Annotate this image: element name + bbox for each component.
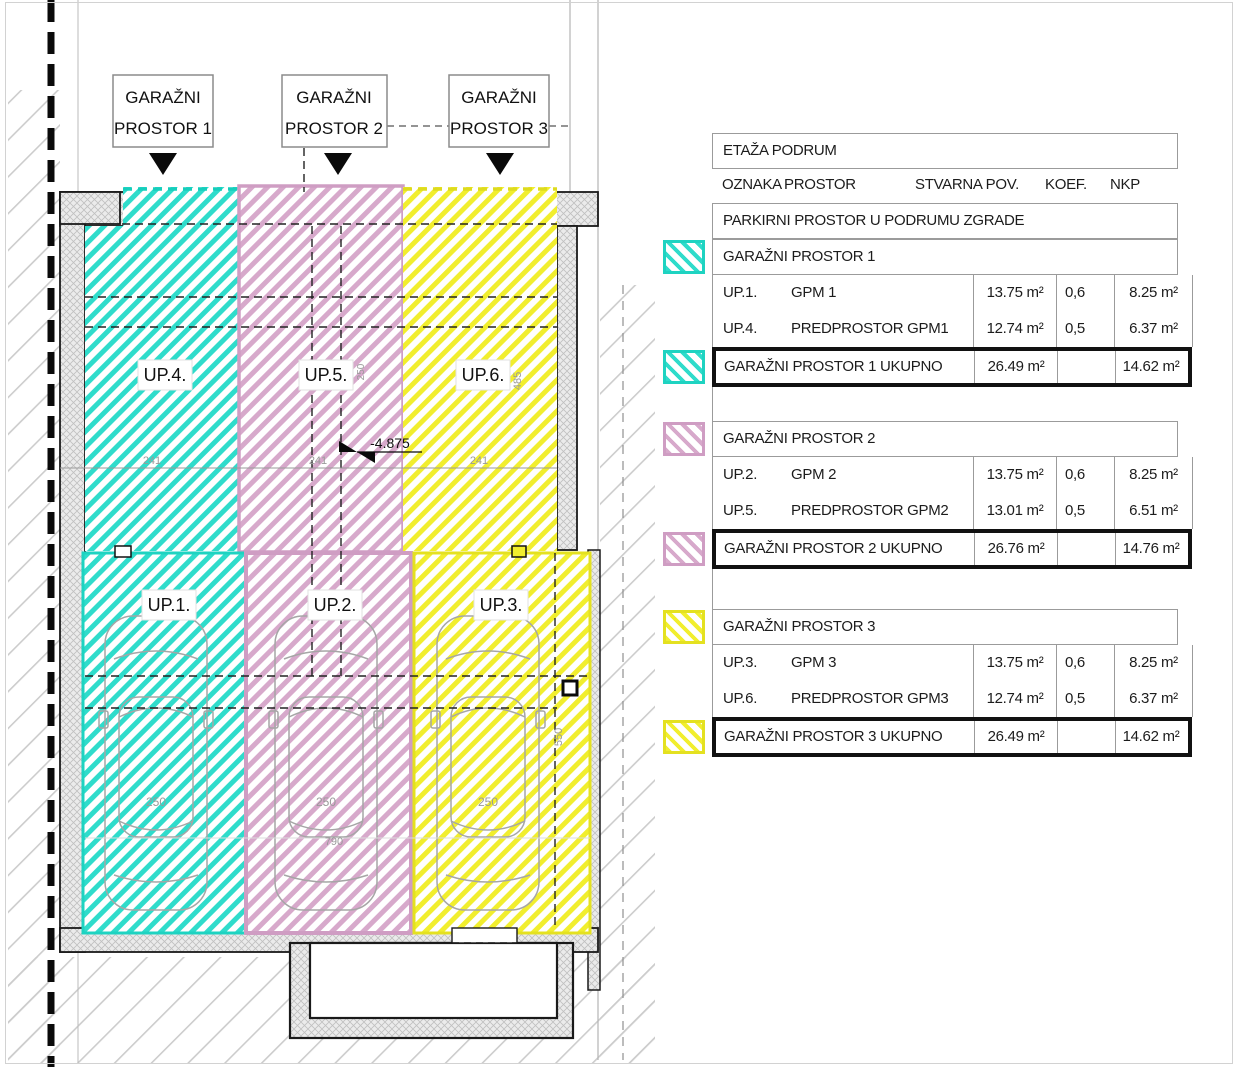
table-subtitle-row: PARKIRNI PROSTOR U PODRUMU ZGRADE bbox=[663, 203, 1203, 239]
cell-oznaka: UP.6. bbox=[713, 681, 791, 717]
garage-callout-3-line1: GARAŽNI bbox=[461, 88, 537, 107]
table-header-row: OZNAKA PROSTOR STVARNA POV. KOEF. NKP bbox=[663, 169, 1203, 203]
total-nkp: 14.76 m² bbox=[1115, 533, 1186, 565]
floor-plan: 241 241 241 485 250 550 250 250 250 790 … bbox=[0, 0, 660, 1067]
cell-nkp: 8.25 m² bbox=[1114, 275, 1193, 311]
cell-nkp: 8.25 m² bbox=[1114, 457, 1193, 493]
callout-arrow-icon bbox=[324, 153, 352, 175]
cell-nkp: 6.37 m² bbox=[1114, 311, 1193, 347]
total-stvarna: 26.49 m² bbox=[974, 351, 1057, 383]
garage-callout-1: GARAŽNI PROSTOR 1 bbox=[113, 75, 213, 175]
dim-car3: 250 bbox=[478, 795, 498, 809]
drawing-sheet: 241 241 241 485 250 550 250 250 250 790 … bbox=[0, 0, 1238, 1067]
cell-koef: 0,5 bbox=[1056, 681, 1114, 717]
dim-bay2: 241 bbox=[309, 455, 327, 467]
cell-prostor: GPM 3 bbox=[791, 645, 973, 681]
junction-box-icon bbox=[563, 681, 577, 695]
wall-notch bbox=[60, 192, 120, 224]
col-header-nkp: NKP bbox=[1110, 176, 1140, 193]
cell-oznaka: UP.1. bbox=[713, 275, 791, 311]
section2-total-row: GARAŽNI PROSTOR 2 UKUPNO 26.76 m² 14.76 … bbox=[663, 529, 1203, 569]
cell-oznaka: UP.5. bbox=[713, 493, 791, 529]
total-nkp: 14.62 m² bbox=[1115, 351, 1186, 383]
room-label-up6: UP.6. bbox=[462, 365, 505, 385]
dim-upper-height: 485 bbox=[512, 372, 524, 390]
legend-swatch-garage1 bbox=[663, 240, 705, 274]
legend-swatch-garage2-total bbox=[663, 532, 705, 566]
cell-koef: 0,6 bbox=[1056, 275, 1114, 311]
total-nkp: 14.62 m² bbox=[1115, 721, 1186, 753]
section-gap bbox=[663, 569, 1203, 609]
cell-oznaka: UP.3. bbox=[713, 645, 791, 681]
area-table: ETAŽA PODRUM OZNAKA PROSTOR STVARNA POV.… bbox=[663, 133, 1203, 757]
table-row: UP.4. PREDPROSTOR GPM1 12.74 m² 0,5 6.37… bbox=[663, 311, 1203, 347]
table-row: UP.3. GPM 3 13.75 m² 0,6 8.25 m² bbox=[663, 645, 1203, 681]
dim-car1: 250 bbox=[146, 795, 166, 809]
section3-name-row: GARAŽNI PROSTOR 3 bbox=[663, 609, 1203, 645]
section1-name-row: GARAŽNI PROSTOR 1 bbox=[663, 239, 1203, 275]
cell-stvarna: 13.75 m² bbox=[973, 645, 1056, 681]
site-hatch-right bbox=[600, 285, 655, 1063]
cell-prostor: PREDPROSTOR GPM2 bbox=[791, 493, 973, 529]
dim-car2: 250 bbox=[316, 795, 336, 809]
legend-swatch-garage3 bbox=[663, 610, 705, 644]
total-stvarna: 26.49 m² bbox=[974, 721, 1057, 753]
garage-callout-1-line1: GARAŽNI bbox=[125, 88, 201, 107]
total-koef bbox=[1057, 533, 1115, 565]
col-header-oznaka: OZNAKA bbox=[722, 176, 782, 193]
cell-nkp: 8.25 m² bbox=[1114, 645, 1193, 681]
callout-arrow-icon bbox=[486, 153, 514, 175]
section1-total-row: GARAŽNI PROSTOR 1 UKUPNO 26.49 m² 14.62 … bbox=[663, 347, 1203, 387]
section2-name: GARAŽNI PROSTOR 2 bbox=[712, 421, 1178, 457]
cell-koef: 0,6 bbox=[1056, 457, 1114, 493]
dim-upper-mid: 250 bbox=[356, 363, 367, 380]
section3-total-row: GARAŽNI PROSTOR 3 UKUPNO 26.49 m² 14.62 … bbox=[663, 717, 1203, 757]
legend-swatch-garage3-total bbox=[663, 720, 705, 754]
cell-stvarna: 13.75 m² bbox=[973, 275, 1056, 311]
ramp-structure bbox=[290, 928, 573, 1038]
room-label-up2: UP.2. bbox=[314, 595, 357, 615]
legend-swatch-garage1-total bbox=[663, 350, 705, 384]
callout-arrow-icon bbox=[149, 153, 177, 175]
section2-name-row: GARAŽNI PROSTOR 2 bbox=[663, 421, 1203, 457]
cell-oznaka: UP.4. bbox=[713, 311, 791, 347]
cell-prostor: PREDPROSTOR GPM1 bbox=[791, 311, 973, 347]
garage-callout-3: GARAŽNI PROSTOR 3 bbox=[449, 75, 549, 175]
cell-stvarna: 12.74 m² bbox=[973, 681, 1056, 717]
cell-koef: 0,5 bbox=[1056, 493, 1114, 529]
elevation-value: -4.875 bbox=[370, 435, 410, 451]
garage-callout-3-line2: PROSTOR 3 bbox=[450, 119, 548, 138]
table-subtitle: PARKIRNI PROSTOR U PODRUMU ZGRADE bbox=[712, 203, 1178, 239]
total-koef bbox=[1057, 351, 1115, 383]
cell-prostor: GPM 2 bbox=[791, 457, 973, 493]
table-row: UP.5. PREDPROSTOR GPM2 13.01 m² 0,5 6.51… bbox=[663, 493, 1203, 529]
total-label: GARAŽNI PROSTOR 2 UKUPNO bbox=[716, 533, 974, 565]
garage-callout-2-line2: PROSTOR 2 bbox=[285, 119, 383, 138]
cell-koef: 0,5 bbox=[1056, 311, 1114, 347]
dim-bay3: 241 bbox=[470, 455, 488, 467]
dim-lower-height: 550 bbox=[553, 728, 565, 746]
col-header-stvarna: STVARNA POV. bbox=[915, 176, 1019, 193]
cell-prostor: PREDPROSTOR GPM3 bbox=[791, 681, 973, 717]
wall-opening bbox=[452, 928, 517, 943]
room-label-up3: UP.3. bbox=[480, 595, 523, 615]
garage-callout-2-line1: GARAŽNI bbox=[296, 88, 372, 107]
cell-koef: 0,6 bbox=[1056, 645, 1114, 681]
col-header-koef: KOEF. bbox=[1045, 176, 1087, 193]
cell-oznaka: UP.2. bbox=[713, 457, 791, 493]
col-header-prostor: PROSTOR bbox=[784, 176, 856, 193]
section-gap bbox=[663, 387, 1203, 421]
threshold-marker-2 bbox=[512, 546, 526, 557]
dim-car-length: 790 bbox=[325, 836, 343, 848]
threshold-marker-1 bbox=[115, 546, 131, 557]
room-label-up1: UP.1. bbox=[148, 595, 191, 615]
room-label-up4: UP.4. bbox=[144, 365, 187, 385]
garage-callout-2: GARAŽNI PROSTOR 2 bbox=[282, 75, 387, 175]
table-title-row: ETAŽA PODRUM bbox=[663, 133, 1203, 169]
section3-name: GARAŽNI PROSTOR 3 bbox=[712, 609, 1178, 645]
total-label: GARAŽNI PROSTOR 1 UKUPNO bbox=[716, 351, 974, 383]
cell-prostor: GPM 1 bbox=[791, 275, 973, 311]
cell-stvarna: 13.75 m² bbox=[973, 457, 1056, 493]
wall-right-upper bbox=[557, 226, 577, 550]
table-row: UP.1. GPM 1 13.75 m² 0,6 8.25 m² bbox=[663, 275, 1203, 311]
total-koef bbox=[1057, 721, 1115, 753]
dim-bay1: 241 bbox=[143, 455, 161, 467]
table-row: UP.6. PREDPROSTOR GPM3 12.74 m² 0,5 6.37… bbox=[663, 681, 1203, 717]
section1-name: GARAŽNI PROSTOR 1 bbox=[712, 239, 1178, 275]
cell-stvarna: 13.01 m² bbox=[973, 493, 1056, 529]
room-label-up5: UP.5. bbox=[305, 365, 348, 385]
garage-callout-1-line2: PROSTOR 1 bbox=[114, 119, 212, 138]
cell-stvarna: 12.74 m² bbox=[973, 311, 1056, 347]
cell-nkp: 6.37 m² bbox=[1114, 681, 1193, 717]
table-row: UP.2. GPM 2 13.75 m² 0,6 8.25 m² bbox=[663, 457, 1203, 493]
legend-swatch-garage2 bbox=[663, 422, 705, 456]
total-label: GARAŽNI PROSTOR 3 UKUPNO bbox=[716, 721, 974, 753]
cell-nkp: 6.51 m² bbox=[1114, 493, 1193, 529]
wall-left bbox=[60, 192, 85, 952]
table-title: ETAŽA PODRUM bbox=[712, 133, 1178, 169]
total-stvarna: 26.76 m² bbox=[974, 533, 1057, 565]
